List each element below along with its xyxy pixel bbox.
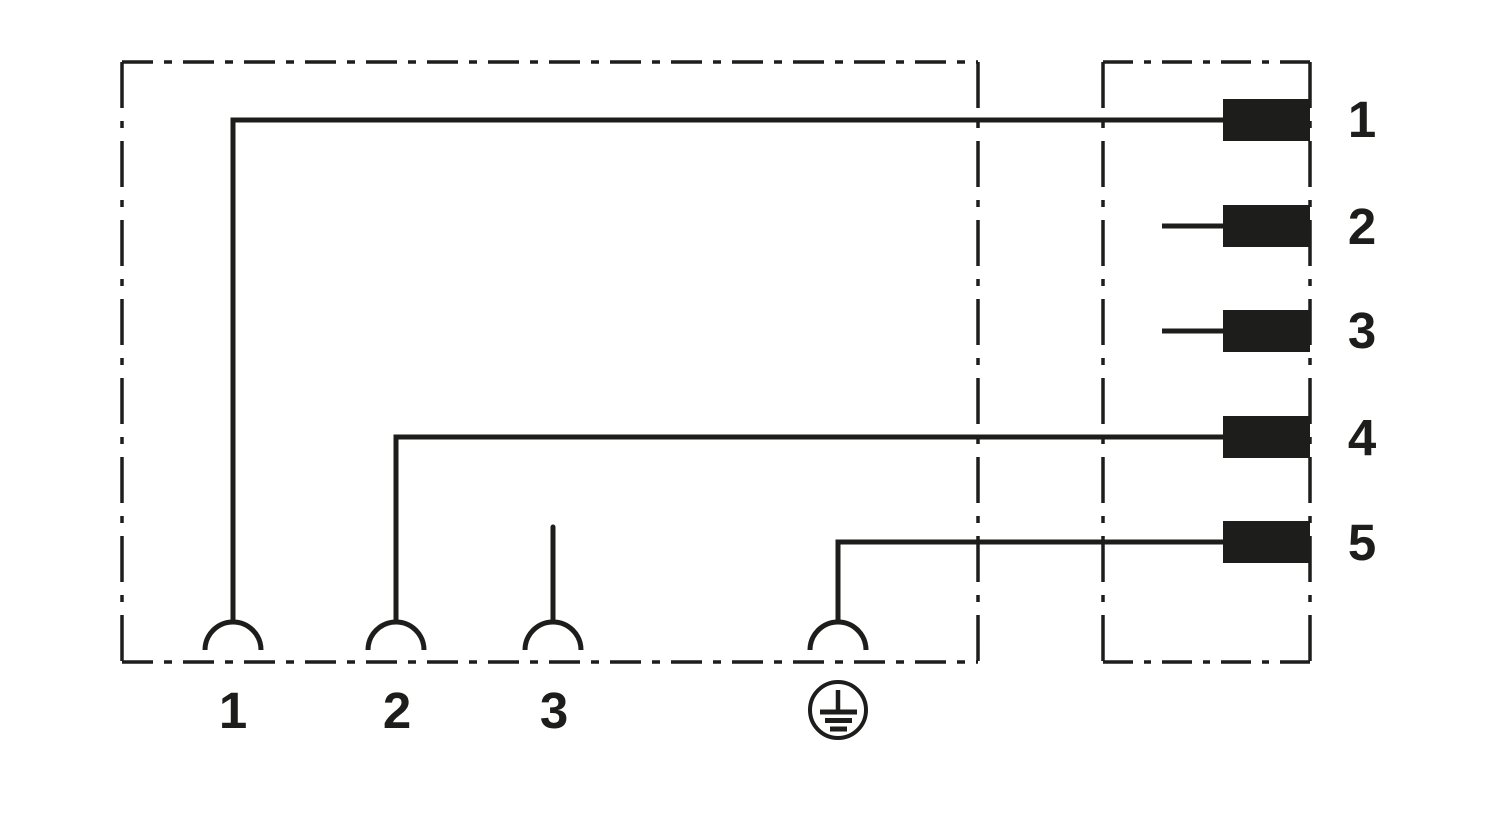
pin-label-3: 3: [1330, 305, 1394, 357]
protective-earth-icon: [810, 682, 866, 738]
wires: [233, 120, 1261, 622]
connector-box: [1103, 62, 1310, 662]
wire-contact2-to-pin4: [396, 437, 1261, 622]
pin-1-terminal: [1223, 99, 1310, 141]
wire-earth-to-pin5: [838, 542, 1261, 622]
socket-housing-box: [122, 62, 978, 662]
pin-label-2: 2: [1330, 201, 1394, 253]
wiring-diagram-stage: 1 2 3 4 5 1 2 3: [0, 0, 1500, 820]
socket-contact-arcs: [205, 622, 866, 650]
contact-2-arc: [368, 622, 424, 650]
contact-1-arc: [205, 622, 261, 650]
pin-terminals: [1223, 99, 1310, 563]
contact-3-arc: [525, 622, 581, 650]
contact-label-2: 2: [365, 685, 429, 737]
pin-2-terminal: [1223, 205, 1310, 247]
contact-label-3: 3: [522, 685, 586, 737]
pin-label-4: 4: [1330, 412, 1394, 464]
pin-label-5: 5: [1330, 517, 1394, 569]
contact-label-1: 1: [201, 685, 265, 737]
pin-3-terminal: [1223, 310, 1310, 352]
pin-5-terminal: [1223, 521, 1310, 563]
wire-contact1-to-pin1: [233, 120, 1261, 622]
pin-4-terminal: [1223, 416, 1310, 458]
pin-label-1: 1: [1330, 94, 1394, 146]
contact-pe-arc: [810, 622, 866, 650]
